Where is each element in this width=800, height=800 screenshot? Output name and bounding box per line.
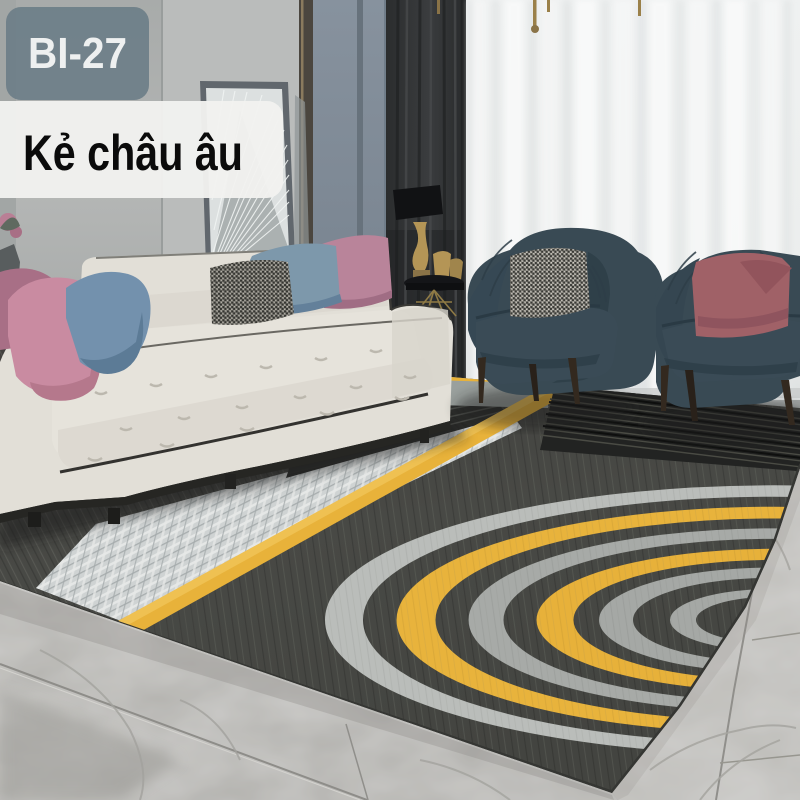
svg-text:BI-27: BI-27 [28,29,127,78]
svg-text:Kẻ châu âu: Kẻ châu âu [23,125,243,181]
